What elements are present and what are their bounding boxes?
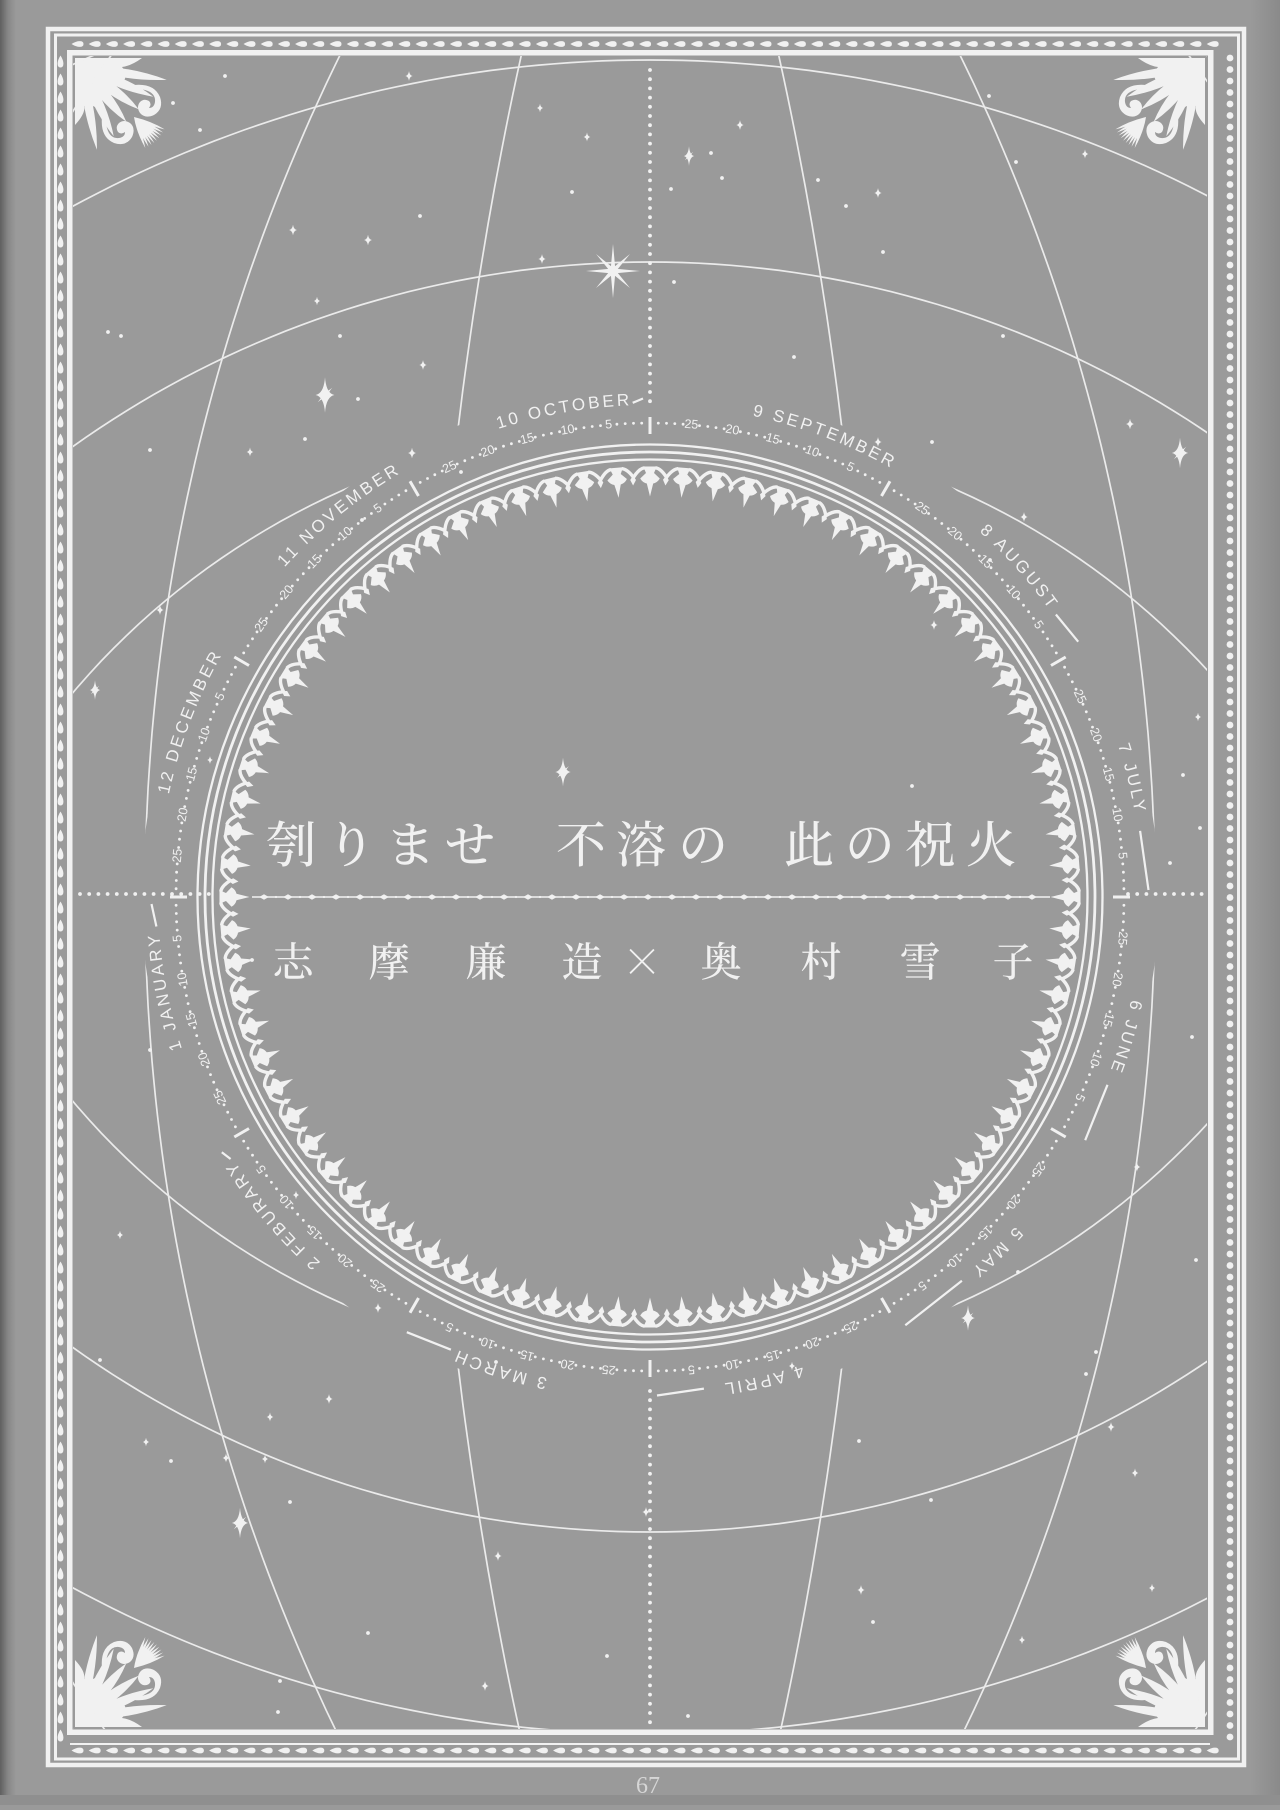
svg-text:5: 5 [605, 417, 613, 432]
svg-text:20: 20 [1109, 971, 1125, 987]
svg-text:5: 5 [170, 934, 185, 942]
svg-text:10: 10 [1109, 807, 1125, 823]
svg-text:67: 67 [636, 1773, 660, 1799]
svg-text:5: 5 [687, 1362, 695, 1377]
svg-text:10: 10 [724, 1356, 740, 1372]
svg-text:20: 20 [175, 806, 191, 822]
svg-text:20: 20 [559, 1356, 575, 1372]
svg-text:20: 20 [724, 422, 740, 438]
svg-text:25: 25 [601, 1362, 616, 1377]
svg-text:5: 5 [1115, 852, 1130, 860]
svg-text:10: 10 [175, 971, 191, 987]
svg-text:25: 25 [1115, 931, 1130, 946]
svg-text:10: 10 [560, 422, 576, 438]
svg-text:25: 25 [170, 848, 185, 863]
svg-text:25: 25 [684, 417, 699, 432]
